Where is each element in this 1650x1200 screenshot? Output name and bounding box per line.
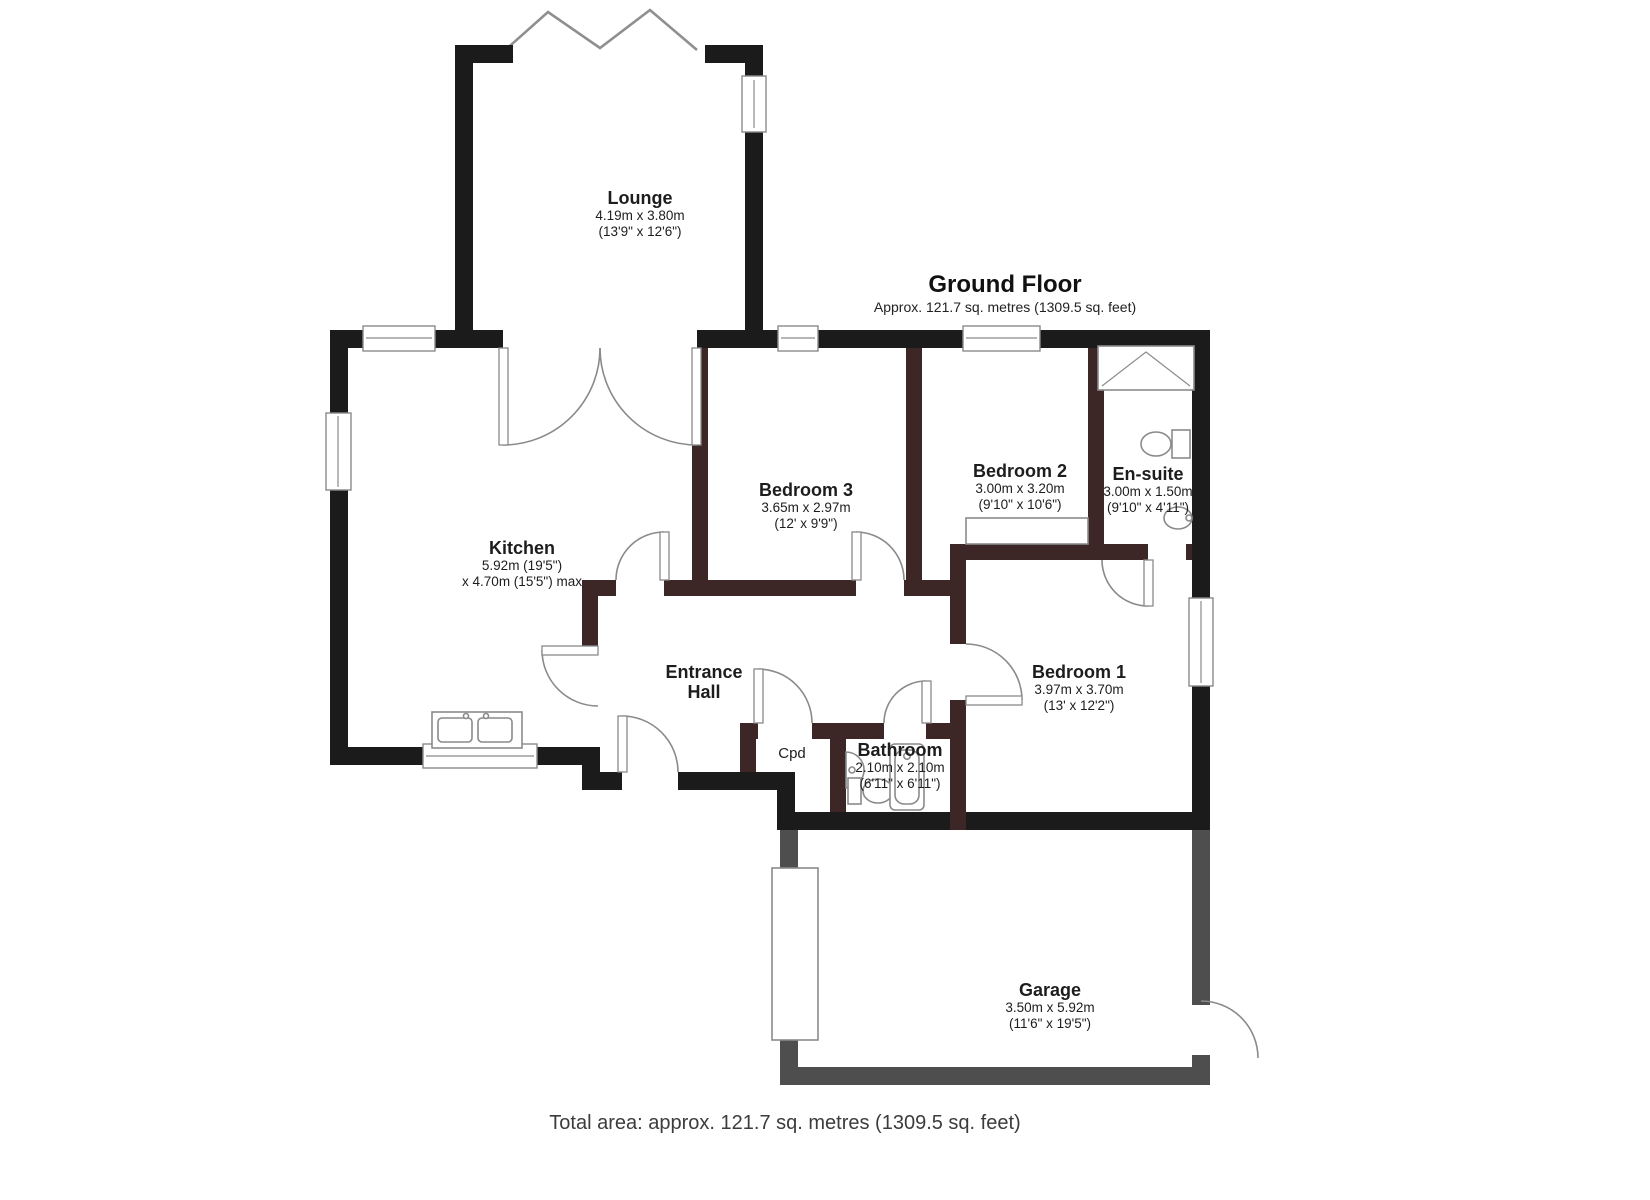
room-label-entrance-hall: Entrance Hall xyxy=(665,662,742,702)
room-name: En-suite xyxy=(1103,464,1192,484)
room-name: Garage xyxy=(1005,980,1094,1000)
room-dims-imperial: (6'11" x 6'11") xyxy=(855,776,944,792)
room-dims-imperial: (9'10" x 4'11") xyxy=(1103,500,1192,516)
floorplan-drawing xyxy=(0,0,1650,1200)
room-name: Bedroom 2 xyxy=(973,461,1067,481)
room-dims-metric: 3.00m x 3.20m xyxy=(973,481,1067,497)
doors xyxy=(499,348,1258,1058)
room-label-bedroom1: Bedroom 1 3.97m x 3.70m (13' x 12'2") xyxy=(1032,662,1126,713)
room-label-bedroom3: Bedroom 3 3.65m x 2.97m (12' x 9'9") xyxy=(759,480,853,531)
room-name: Bedroom 1 xyxy=(1032,662,1126,682)
room-dims-imperial: (12' x 9'9") xyxy=(759,516,853,532)
floor-title-heading: Ground Floor xyxy=(874,272,1136,298)
room-label-bedroom2: Bedroom 2 3.00m x 3.20m (9'10" x 10'6") xyxy=(973,461,1067,512)
room-dims-imperial: (9'10" x 10'6") xyxy=(973,497,1067,513)
floorplan-page: Ground Floor Approx. 121.7 sq. metres (1… xyxy=(0,0,1650,1200)
room-name: Entrance xyxy=(665,662,742,682)
room-dims-metric: 3.50m x 5.92m xyxy=(1005,1000,1094,1016)
room-dims-metric: 3.97m x 3.70m xyxy=(1032,682,1126,698)
room-dims-metric: 3.65m x 2.97m xyxy=(759,500,853,516)
room-label-ensuite: En-suite 3.00m x 1.50m (9'10" x 4'11") xyxy=(1103,464,1192,515)
garage-door xyxy=(772,868,818,1040)
room-label-cupboard: Cpd xyxy=(778,745,806,762)
wall-break-zigzag-icon xyxy=(503,10,697,52)
room-dims-imperial: (11'6" x 19'5") xyxy=(1005,1016,1094,1032)
room-label-kitchen: Kitchen 5.92m (19'5") x 4.70m (15'5") ma… xyxy=(462,538,582,589)
kitchen-sink xyxy=(432,712,522,748)
total-area-note: Total area: approx. 121.7 sq. metres (13… xyxy=(549,1112,1020,1135)
shower-tray xyxy=(1098,346,1194,390)
floor-title: Ground Floor Approx. 121.7 sq. metres (1… xyxy=(874,272,1136,316)
floor-title-subheading: Approx. 121.7 sq. metres (1309.5 sq. fee… xyxy=(874,298,1136,316)
room-name: Kitchen xyxy=(462,538,582,558)
room-name: Bathroom xyxy=(855,740,944,760)
room-name: Cpd xyxy=(778,745,806,762)
room-name: Lounge xyxy=(595,188,684,208)
room-name: Bedroom 3 xyxy=(759,480,853,500)
room-dims-imperial: (13' x 12'2") xyxy=(1032,698,1126,714)
room-label-lounge: Lounge 4.19m x 3.80m (13'9" x 12'6") xyxy=(595,188,684,239)
garage-walls xyxy=(780,830,1210,1085)
ensuite-toilet xyxy=(1141,430,1190,458)
bedroom2-wardrobe xyxy=(966,518,1088,544)
room-dims-imperial: x 4.70m (15'5") max xyxy=(462,574,582,590)
room-dims-imperial: (13'9" x 12'6") xyxy=(595,224,684,240)
room-name: Hall xyxy=(665,682,742,702)
room-dims-metric: 4.19m x 3.80m xyxy=(595,208,684,224)
room-label-garage: Garage 3.50m x 5.92m (11'6" x 19'5") xyxy=(1005,980,1094,1031)
room-dims-metric: 2.10m x 2.10m xyxy=(855,760,944,776)
room-dims-metric: 3.00m x 1.50m xyxy=(1103,484,1192,500)
room-dims-metric: 5.92m (19'5") xyxy=(462,558,582,574)
room-label-bathroom: Bathroom 2.10m x 2.10m (6'11" x 6'11") xyxy=(855,740,944,791)
